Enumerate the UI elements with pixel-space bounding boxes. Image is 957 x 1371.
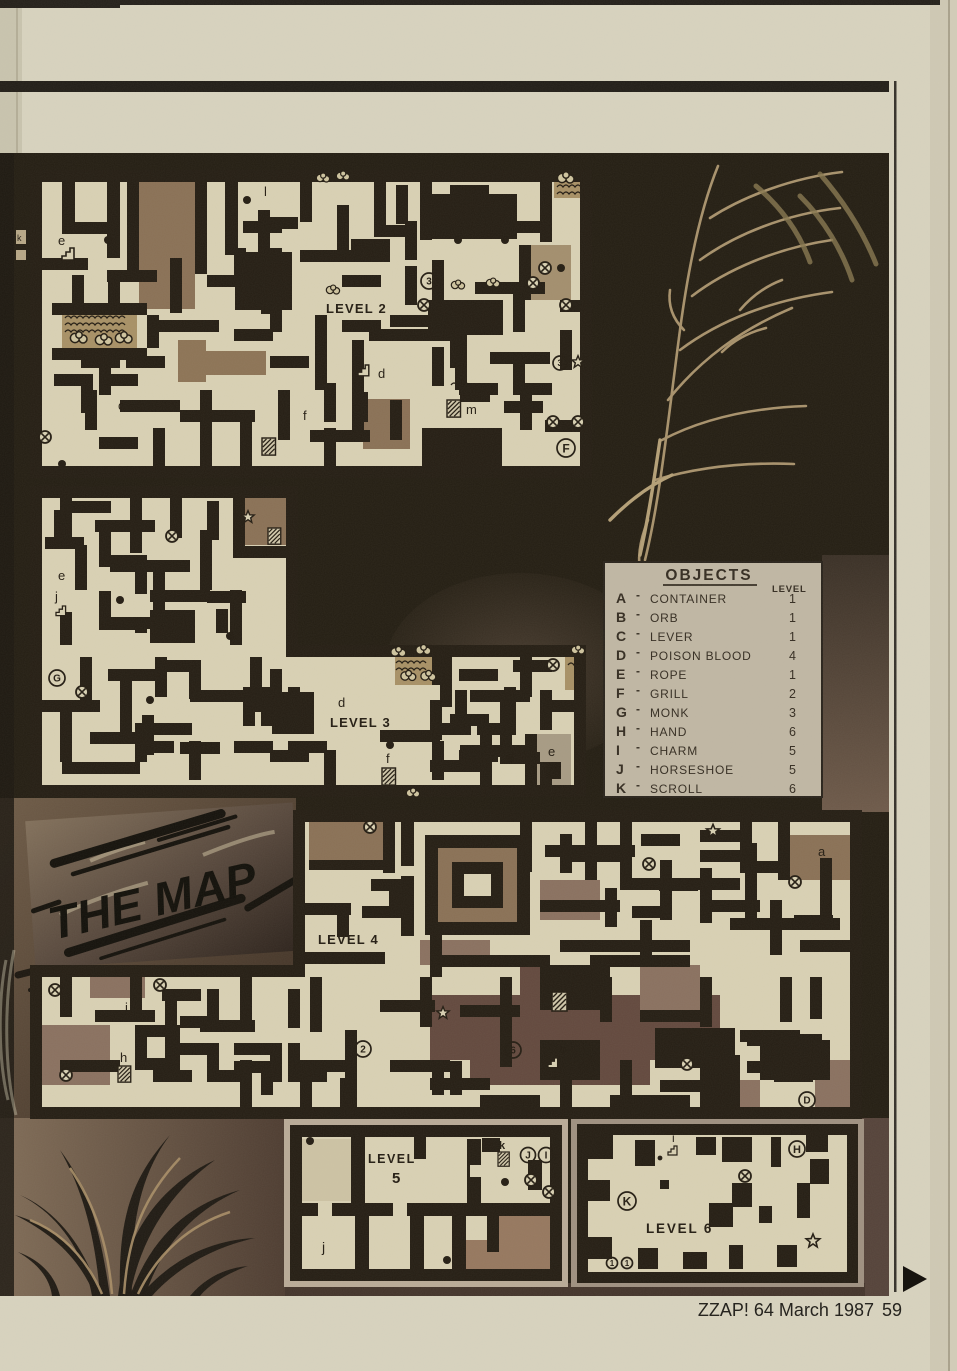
svg-text:ZZAP! 64 March 1987: ZZAP! 64 March 1987 xyxy=(698,1300,874,1320)
svg-text:59: 59 xyxy=(882,1300,902,1320)
